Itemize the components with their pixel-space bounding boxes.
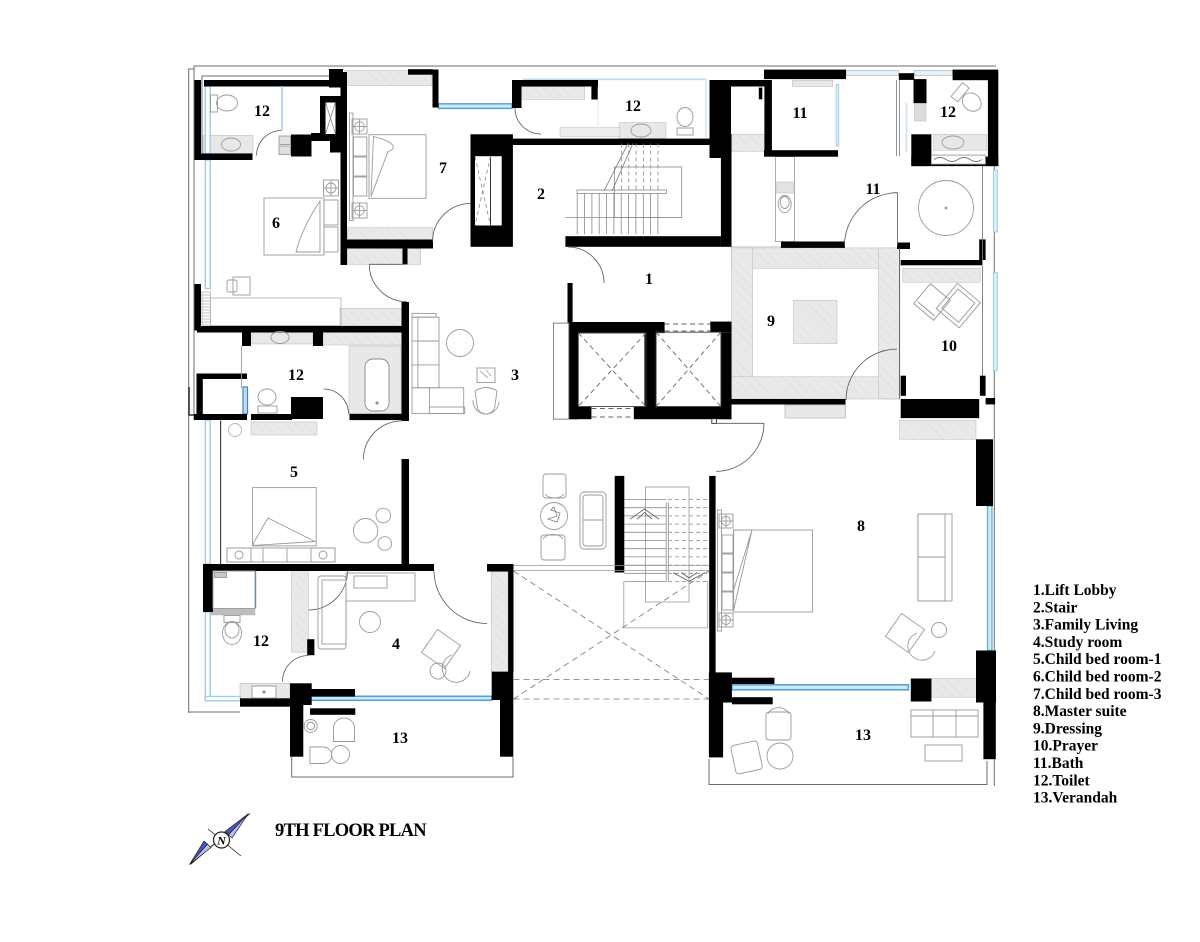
svg-text:9: 9 xyxy=(767,313,775,330)
svg-text:13.Verandah: 13.Verandah xyxy=(1033,790,1118,807)
svg-text:7: 7 xyxy=(439,160,447,177)
svg-text:3.Family Living: 3.Family Living xyxy=(1033,617,1138,634)
svg-text:12: 12 xyxy=(940,104,956,121)
svg-text:5: 5 xyxy=(290,464,298,481)
svg-text:12: 12 xyxy=(253,633,269,650)
svg-text:12: 12 xyxy=(254,103,270,120)
svg-text:10: 10 xyxy=(941,338,957,355)
svg-text:13: 13 xyxy=(392,730,408,747)
svg-text:12.Toilet: 12.Toilet xyxy=(1033,772,1091,789)
svg-text:10.Prayer: 10.Prayer xyxy=(1033,738,1098,755)
svg-text:12: 12 xyxy=(625,98,641,115)
svg-text:9.Dressing: 9.Dressing xyxy=(1033,720,1102,737)
svg-text:1.Lift Lobby: 1.Lift Lobby xyxy=(1033,582,1117,599)
svg-text:3: 3 xyxy=(511,367,519,384)
svg-text:2: 2 xyxy=(537,186,545,203)
svg-text:9TH FLOOR PLAN: 9TH FLOOR PLAN xyxy=(275,821,427,841)
svg-text:11: 11 xyxy=(792,105,807,122)
svg-text:6: 6 xyxy=(272,215,280,232)
svg-text:13: 13 xyxy=(855,727,871,744)
svg-text:2.Stair: 2.Stair xyxy=(1033,599,1077,616)
svg-text:8.Master suite: 8.Master suite xyxy=(1033,703,1127,720)
svg-text:11: 11 xyxy=(865,181,880,198)
svg-text:5.Child bed room-1: 5.Child bed room-1 xyxy=(1033,651,1161,668)
svg-text:4: 4 xyxy=(392,636,400,653)
svg-text:7.Child bed room-3: 7.Child bed room-3 xyxy=(1033,686,1162,703)
svg-text:11.Bath: 11.Bath xyxy=(1033,755,1084,772)
svg-text:4.Study room: 4.Study room xyxy=(1033,634,1122,651)
svg-text:6.Child bed room-2: 6.Child bed room-2 xyxy=(1033,669,1162,686)
svg-text:1: 1 xyxy=(645,271,653,288)
svg-text:N: N xyxy=(216,834,227,848)
svg-text:8: 8 xyxy=(857,518,865,535)
svg-text:12: 12 xyxy=(288,367,304,384)
